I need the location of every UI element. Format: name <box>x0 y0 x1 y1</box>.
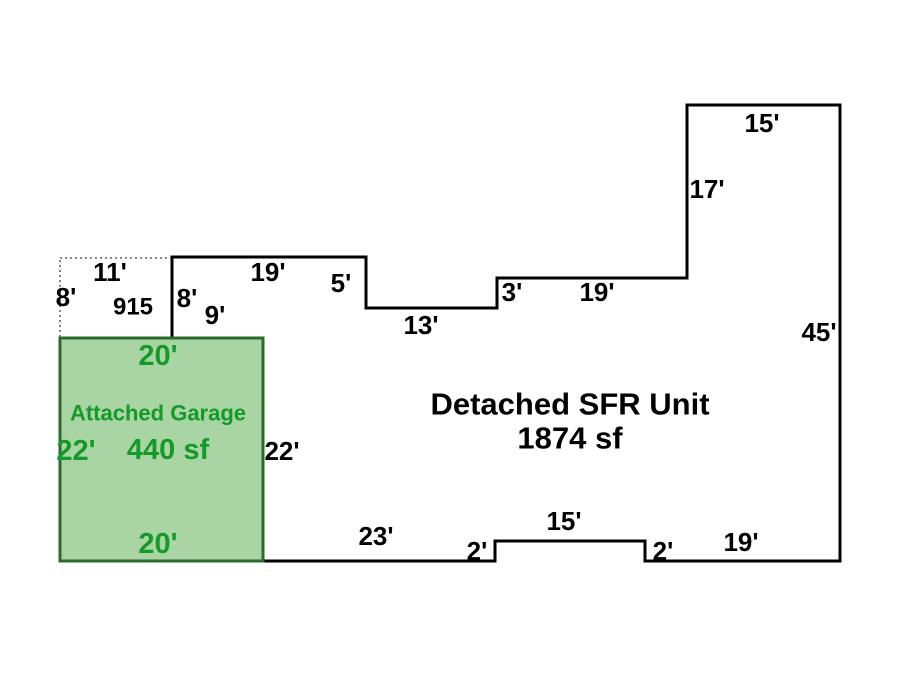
dim-garage-left-22: 22' <box>56 435 95 467</box>
floorplan: 8'11'9158'9'19'5'13'3'19'17'15'45'19'2'1… <box>0 0 900 675</box>
dim-garage-bottom-20: 20' <box>138 528 177 560</box>
floorplan-svg: 8'11'9158'9'19'5'13'3'19'17'15'45'19'2'1… <box>0 0 900 675</box>
dim-right-45: 45' <box>801 317 836 347</box>
dim-bottom-23: 23' <box>358 521 393 551</box>
unit-area: 1874 sf <box>517 421 623 456</box>
dim-unit-left-8: 8' <box>177 283 198 313</box>
dim-porch-left-8: 8' <box>56 282 77 312</box>
garage-area: 440 sf <box>127 434 210 466</box>
unit-title: Detached SFR Unit <box>430 387 709 422</box>
dim-top-5: 5' <box>331 268 352 298</box>
main-unit-outline <box>172 105 840 561</box>
dim-porch-top-11: 11' <box>93 257 127 287</box>
dim-top-19: 19' <box>250 257 285 287</box>
dim-bottom-2-right: 2' <box>653 536 674 566</box>
dim-garage-right-22: 22' <box>264 436 299 466</box>
dim-top-3: 3' <box>502 277 523 307</box>
dim-garage-top-20: 20' <box>138 340 177 372</box>
dim-top-13: 13' <box>403 310 438 340</box>
dim-bottom-19: 19' <box>723 527 758 557</box>
garage-title: Attached Garage <box>70 401 246 426</box>
dim-bottom-15: 15' <box>546 506 581 536</box>
porch-area-915: 915 <box>113 294 153 321</box>
dim-bottom-2-left: 2' <box>467 536 488 566</box>
dim-tower-left-17: 17' <box>689 174 724 204</box>
dim-top-19b: 19' <box>579 277 614 307</box>
dim-unit-bottomleft-9: 9' <box>205 300 226 330</box>
dim-tower-top-15: 15' <box>744 108 779 138</box>
